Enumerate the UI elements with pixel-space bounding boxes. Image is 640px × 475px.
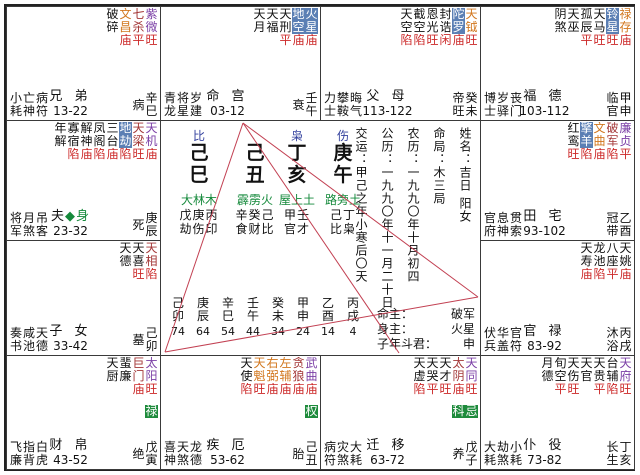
age-range: 73-82 <box>481 453 608 467</box>
star-char: 寡 <box>67 122 80 135</box>
star: 天月 <box>253 8 266 47</box>
hidden-stem-gods: 食财比 <box>231 222 279 236</box>
star-char: 禄 <box>619 8 632 21</box>
stage-char: 墓 <box>132 334 145 347</box>
stem-branch: 戊子 <box>465 441 478 467</box>
star-char: 钺 <box>465 21 478 34</box>
decade-luck-column: 乙酉14 <box>321 297 335 338</box>
life-stage: 冠带 <box>606 212 619 238</box>
star-char: 池 <box>593 255 606 268</box>
brightness: 旺 <box>606 34 619 47</box>
pillar-branch: 亥 <box>273 164 321 186</box>
ziwei-doushu-chart: 比己巳大林木戊庚丙劫伤印 己丑霹雳火辛癸己食财比枭丁亥屋上土甲壬官才伤庚午路旁土… <box>0 0 640 475</box>
stage-char: 浴 <box>606 340 619 353</box>
star-char: 太 <box>452 357 465 370</box>
star-char: 机 <box>145 135 158 148</box>
body-master-value: 火星 <box>451 322 475 337</box>
brightness: 庙 <box>305 34 318 47</box>
life-stage: 长生 <box>606 441 619 467</box>
life-stage: 绝 <box>132 441 145 467</box>
brightness: 陷 <box>67 148 80 161</box>
age-range: 43-52 <box>7 453 134 467</box>
age-range: 13-22 <box>7 104 134 118</box>
star-char: 天 <box>145 122 158 135</box>
brightness: 庙 <box>452 34 465 47</box>
star: 天哭平 <box>426 357 439 418</box>
palace-name: 父 母 <box>321 85 454 104</box>
ten-god-label: 比 <box>175 127 223 142</box>
palace-name-text: 田 宅 <box>523 209 565 224</box>
brightness: 旺 <box>465 34 478 47</box>
luck-start-age: 74 <box>171 325 185 338</box>
brightness: 陷 <box>593 268 606 281</box>
star-char: 廉 <box>619 122 632 135</box>
star-char: 廉 <box>119 370 132 383</box>
brightness: 旺 <box>567 148 580 161</box>
brightness: 陷 <box>240 383 253 396</box>
palace-name-text: 疾 厄 <box>206 438 248 453</box>
luck-start-age: 64 <box>196 325 210 338</box>
life-master-row: 命主： 破军 <box>377 307 475 322</box>
stem-branch-char: 申 <box>619 105 632 118</box>
decade-luck-column: 庚辰64 <box>196 297 210 338</box>
star-list: 红鸾旺擎羊陷文曲庙破军陷廉贞平 <box>567 122 632 161</box>
star-char: 天 <box>279 8 292 21</box>
star-char: 台 <box>106 135 119 148</box>
star-char: 文 <box>593 122 606 135</box>
star-char: 阳 <box>145 370 158 383</box>
star-list: 天使陷天魁旺右弼庙左辅庙贪狼庙武曲庙权 <box>240 357 318 418</box>
star-char: 阴 <box>554 8 567 21</box>
stage-char: 带 <box>606 225 619 238</box>
palace-name: 官 禄 <box>481 320 608 339</box>
palace-name: 兄 弟 <box>7 85 134 104</box>
body-master-label: 身主： <box>377 322 413 337</box>
star-char: 破 <box>606 122 619 135</box>
star-char: 杀 <box>132 21 145 34</box>
star-char: 辅 <box>279 370 292 383</box>
brightness: 陷 <box>413 34 426 47</box>
brightness: 旺 <box>465 383 478 396</box>
star: 天厨 <box>106 357 119 418</box>
star: 八座平 <box>606 242 619 281</box>
brightness: 庙 <box>452 383 465 396</box>
brightness: 平 <box>593 383 606 396</box>
brightness: 陷 <box>93 148 106 161</box>
star: 天同旺忌 <box>465 357 478 418</box>
star-char: 空 <box>292 21 305 34</box>
transform-badge: 权 <box>305 405 318 418</box>
star-char: 年 <box>54 122 67 135</box>
star-char: 魁 <box>253 370 266 383</box>
star: 武曲庙权 <box>305 357 318 418</box>
brightness: 庙 <box>619 268 632 281</box>
star: 旬空平 <box>554 357 567 396</box>
life-stage: 墓 <box>132 327 145 353</box>
star: 年解 <box>54 122 67 161</box>
star-char: 天 <box>240 357 253 370</box>
star: 巨门庙 <box>132 357 145 418</box>
star: 天官 <box>580 357 593 396</box>
star-char: 文 <box>119 8 132 21</box>
star: 天空陷 <box>400 8 413 47</box>
star: 天机庙 <box>145 122 158 161</box>
brightness: 庙 <box>279 383 292 396</box>
star-char: 天 <box>132 242 145 255</box>
brightness: 闲 <box>439 34 452 47</box>
palace-name: 田 宅 <box>481 205 608 224</box>
stage-stem-branch: 绝戊寅 <box>132 441 158 467</box>
star-char: 空 <box>554 370 567 383</box>
stage-stem-branch: 长生丁亥 <box>606 441 632 467</box>
star: 火星庙 <box>305 8 318 47</box>
star-char: 七 <box>132 8 145 21</box>
luck-start-age: 44 <box>246 325 260 338</box>
palace-name: 子 女 <box>7 320 134 339</box>
brightness <box>253 34 266 47</box>
stem-branch-char: 酉 <box>619 225 632 238</box>
stem-branch-char: 午 <box>305 105 318 118</box>
star: 禄存庙 <box>619 8 632 47</box>
stem-branch-char: 戌 <box>619 340 632 353</box>
stage-char: 死 <box>132 219 145 232</box>
star-char: 天 <box>266 8 279 21</box>
star: 天寿庙 <box>580 242 593 281</box>
info-luck-start: 交运：甲己之年小寒后〇天 <box>353 127 370 309</box>
star-char: 梁 <box>132 135 145 148</box>
stem-branch: 辛巳 <box>145 92 158 118</box>
stem-branch-char: 未 <box>465 105 478 118</box>
brightness <box>119 268 132 281</box>
palace-name-text: 子 女 <box>49 324 91 339</box>
star: 孤辰平 <box>580 8 593 47</box>
stem-branch-char: 寅 <box>145 454 158 467</box>
brightness: 平 <box>554 383 567 396</box>
brightness: 平 <box>606 268 619 281</box>
brightness: 平 <box>619 148 632 161</box>
star-char: 天 <box>465 8 478 21</box>
brightness: 庙 <box>106 148 119 161</box>
life-stage: 病 <box>132 92 145 118</box>
star: 天马旺 <box>593 8 606 47</box>
star-char: 红 <box>567 122 580 135</box>
hidden-stems: 甲壬 <box>273 208 321 222</box>
star-char: 哭 <box>426 370 439 383</box>
star-char: 德 <box>541 370 554 383</box>
brightness: 陷 <box>119 148 132 161</box>
brightness: 旺 <box>439 383 452 396</box>
brightness: 旺 <box>132 268 145 281</box>
stem-branch: 丁亥 <box>619 441 632 467</box>
brightness <box>106 383 119 396</box>
star: 太阳旺禄 <box>145 357 158 418</box>
star-char: 月 <box>253 21 266 34</box>
life-stage: 临官 <box>606 92 619 118</box>
star-char: 刑 <box>279 21 292 34</box>
star-char: 太 <box>145 357 158 370</box>
star: 寡宿陷 <box>67 122 80 161</box>
stage-stem-branch: 临官甲申 <box>606 92 632 118</box>
luck-stem-branch-char: 戌 <box>346 310 360 323</box>
pillar-branch: 巳 <box>175 164 223 186</box>
star: 太阴庙科 <box>452 357 465 418</box>
luck-start-age: 4 <box>346 325 360 338</box>
stem-branch-char: 丑 <box>305 454 318 467</box>
palace-name-text: 父 母 <box>366 89 408 104</box>
age-range: 113-122 <box>321 104 454 118</box>
life-stage: 养 <box>452 441 465 467</box>
luck-start-age: 24 <box>296 325 310 338</box>
luck-stem-branch-char: 申 <box>296 310 310 323</box>
star-char: 天 <box>119 242 132 255</box>
hidden-stem-gods: 官才 <box>273 222 321 236</box>
stage-stem-branch: 帝旺癸未 <box>452 92 478 118</box>
star-list: 天月 天福 天刑平地空庙火星庙 <box>253 8 318 47</box>
palace-name-text: 仆 役 <box>523 438 565 453</box>
palace-name: 夫◆身 <box>7 205 134 224</box>
star-char: 天 <box>567 357 580 370</box>
life-stage: 胎 <box>292 441 305 467</box>
age-range: 83-92 <box>481 339 608 353</box>
star-char: 曲 <box>305 370 318 383</box>
star: 陀罗庙 <box>452 8 465 47</box>
star: 龙池陷 <box>593 242 606 281</box>
palace-name: 命 宫 <box>161 85 294 104</box>
star-char: 才 <box>439 370 452 383</box>
brightness: 平 <box>426 383 439 396</box>
brightness: 庙 <box>80 148 93 161</box>
stage-char: 养 <box>452 448 465 461</box>
star-char: 光 <box>426 21 439 34</box>
pillar-branch: 丑 <box>231 164 279 186</box>
life-master-label: 命主： <box>377 307 413 322</box>
star-char: 军 <box>606 135 619 148</box>
star: 天府旺 <box>619 357 632 396</box>
star: 天福 <box>266 8 279 47</box>
brightness: 庙 <box>580 268 593 281</box>
star-char: 左 <box>279 357 292 370</box>
body-master-row: 身主： 火星 <box>377 322 475 337</box>
star-char: 天 <box>400 8 413 21</box>
star-char: 伤 <box>567 370 580 383</box>
birth-info-block: 姓名：吉日 阳女 命局：木三局 农历：一九九〇年十月初四 公历：一九九〇年十一月… <box>344 127 474 309</box>
star: 七杀平 <box>132 8 145 47</box>
star-char: 昌 <box>119 21 132 34</box>
palace-cell-mao: 天德 天喜旺天相陷奏咸天书池德子 女33-42墓己卯 <box>6 240 161 356</box>
life-master-value: 破军 <box>451 307 475 322</box>
star-char: 八 <box>606 242 619 255</box>
palace-cell-yin: 天厨 蜚廉 巨门庙太阳旺禄飞指白廉背虎财 帛43-52绝戊寅 <box>6 355 161 470</box>
info-name: 姓名：吉日 阳女 <box>457 127 474 309</box>
luck-stem-branch-char: 辰 <box>196 310 210 323</box>
nayin-element: 屋上土 <box>273 191 321 208</box>
star-list: 天虚陷天哭平天才旺太阴庙科天同旺忌 <box>413 357 478 418</box>
star-list: 天厨 蜚廉 巨门庙太阳旺禄 <box>106 357 158 418</box>
star-char: 擎 <box>580 122 593 135</box>
star-char: 罗 <box>452 21 465 34</box>
info-solar-date: 公历：一九九〇年十一月二十日 <box>379 127 396 309</box>
star: 天相陷 <box>145 242 158 281</box>
star-char: 天 <box>145 242 158 255</box>
star-char: 台 <box>606 357 619 370</box>
star-char: 厨 <box>106 370 119 383</box>
star: 截空陷 <box>413 8 426 47</box>
star: 蜚廉 <box>119 357 132 418</box>
brightness: 旺 <box>619 383 632 396</box>
star: 文昌庙 <box>119 8 132 47</box>
stem-branch-char: 卯 <box>145 340 158 353</box>
luck-start-age: 14 <box>321 325 335 338</box>
star: 天虚陷 <box>413 357 426 418</box>
star: 天喜旺 <box>132 242 145 281</box>
pillar-stem: 己 <box>175 142 223 164</box>
age-range: 23-32 <box>7 224 134 238</box>
luck-start-age: 34 <box>271 325 285 338</box>
brightness <box>54 148 67 161</box>
stage-char: 病 <box>132 99 145 112</box>
palace-cell-chou: 天使陷天魁旺右弼庙左辅庙贪狼庙武曲庙权喜天龙神煞德疾 厄53-62胎己丑 <box>160 355 321 470</box>
star-char: 天 <box>132 122 145 135</box>
pillar-stem: 己 <box>231 142 279 164</box>
center-panel: 比己巳大林木戊庚丙劫伤印 己丑霹雳火辛癸己食财比枭丁亥屋上土甲壬官才伤庚午路旁土… <box>160 120 481 356</box>
hidden-stem-gods: 劫伤印 <box>175 222 223 236</box>
star: 铃星旺 <box>606 8 619 47</box>
pillar-2: 枭丁亥屋上土甲壬官才 <box>273 127 321 236</box>
star-char: 天 <box>465 357 478 370</box>
star-char: 星 <box>606 21 619 34</box>
doujun-row: 子年斗君： 申 <box>377 337 475 352</box>
star-char: 天 <box>106 357 119 370</box>
palace-name-text: 迁 移 <box>366 438 408 453</box>
star: 三台庙 <box>106 122 119 161</box>
pillar-0: 比己巳大林木戊庚丙劫伤印 <box>175 127 223 236</box>
star: 解神庙 <box>80 122 93 161</box>
star: 地空庙 <box>292 8 305 47</box>
stage-char: 绝 <box>132 448 145 461</box>
star-char: 官 <box>580 370 593 383</box>
star: 左辅庙 <box>279 357 292 418</box>
star-char: 府 <box>619 370 632 383</box>
stage-stem-branch: 死庚辰 <box>132 212 158 238</box>
star-char: 旬 <box>554 357 567 370</box>
star-char: 微 <box>145 21 158 34</box>
palace-cell-hai: 月德 旬空平天伤旺天官 天贵平台辅陷天府旺大劫小耗煞耗仆 役73-82长生丁亥 <box>480 355 635 470</box>
star: 紫微旺 <box>145 8 158 47</box>
star-char: 诰 <box>439 21 452 34</box>
star-list: 天空陷截空陷恩光旺封诰闲陀罗庙天钺旺 <box>400 8 478 47</box>
star-char: 神 <box>80 135 93 148</box>
palace-cell-si: 破碎 文昌庙七杀平紫微旺小亡病耗神符兄 弟13-22病辛巳 <box>6 6 161 121</box>
luck-stem-branch-char: 卯 <box>171 310 185 323</box>
star-char: 贪 <box>292 357 305 370</box>
stage-char: 生 <box>606 454 619 467</box>
stem-branch: 己卯 <box>145 327 158 353</box>
star-char: 福 <box>266 21 279 34</box>
star: 天才旺 <box>439 357 452 418</box>
stage-char: 胎 <box>292 448 305 461</box>
palace-name: 仆 役 <box>481 434 608 453</box>
star-char: 宿 <box>67 135 80 148</box>
luck-stem-branch-char: 酉 <box>321 310 335 323</box>
star: 天刑平 <box>279 8 292 47</box>
star-char: 天 <box>619 242 632 255</box>
brightness: 庙 <box>119 34 132 47</box>
star-char: 天 <box>253 357 266 370</box>
info-lunar-date: 农历：一九九〇年十月初四 <box>405 127 422 309</box>
stage-stem-branch: 胎己丑 <box>292 441 318 467</box>
stage-stem-branch: 墓己卯 <box>132 327 158 353</box>
brightness: 旺 <box>426 34 439 47</box>
star-list: 年解 寡宿陷解神庙凤阁陷三台庙地劫陷天梁旺天机庙 <box>54 122 158 161</box>
star-char: 姚 <box>619 255 632 268</box>
stage-stem-branch: 病辛巳 <box>132 92 158 118</box>
star: 天使陷 <box>240 357 253 418</box>
age-range: 03-12 <box>161 104 294 118</box>
star: 天贵平 <box>593 357 606 396</box>
star-char: 空 <box>413 21 426 34</box>
palace-cell-xu: 天寿庙龙池陷八座平天姚庙伏华官兵盖符官 禄83-92沐浴丙戌 <box>480 240 635 356</box>
star-char: 阁 <box>93 135 106 148</box>
star: 天德 <box>119 242 132 281</box>
star-char: 碎 <box>106 21 119 34</box>
stage-char: 衰 <box>292 99 305 112</box>
brightness <box>106 34 119 47</box>
stage-stem-branch: 养戊子 <box>452 441 478 467</box>
age-range: 103-112 <box>481 104 608 118</box>
stage-stem-branch: 冠带乙酉 <box>606 212 632 238</box>
star-char: 解 <box>54 135 67 148</box>
star-char: 门 <box>132 370 145 383</box>
ten-god-label <box>231 127 279 142</box>
brightness: 庙 <box>292 383 305 396</box>
palace-name-text: 兄 弟 <box>49 89 91 104</box>
body-palace-marker: ◆身 <box>65 209 90 224</box>
life-stage: 帝旺 <box>452 92 465 118</box>
star-char: 天 <box>439 357 452 370</box>
star: 月德 <box>541 357 554 396</box>
star-char: 天 <box>593 357 606 370</box>
star-char: 天 <box>580 242 593 255</box>
palace-name: 疾 厄 <box>161 434 294 453</box>
stem-branch: 癸未 <box>465 92 478 118</box>
decade-luck-column: 己卯74 <box>171 297 185 338</box>
palace-name-text: 官 禄 <box>523 324 565 339</box>
brightness <box>119 383 132 396</box>
brightness: 旺 <box>567 383 580 396</box>
stage-stem-branch: 沐浴丙戌 <box>606 327 632 353</box>
star-char: 狼 <box>292 370 305 383</box>
brightness: 庙 <box>145 148 158 161</box>
star-char: 相 <box>145 255 158 268</box>
star-char: 德 <box>119 255 132 268</box>
star-char: 鸾 <box>567 135 580 148</box>
star-char: 铃 <box>606 8 619 21</box>
star-char: 贞 <box>619 135 632 148</box>
star-char: 使 <box>240 370 253 383</box>
brightness: 庙 <box>132 383 145 396</box>
brightness: 陷 <box>606 148 619 161</box>
palace-name-text: 夫 <box>51 209 65 224</box>
star-char: 蜚 <box>119 357 132 370</box>
star-char: 星 <box>305 21 318 34</box>
palace-cell-wei: 天空陷截空陷恩光旺封诰闲陀罗庙天钺旺力攀晦士鞍气父 母113-122帝旺癸未 <box>320 6 481 121</box>
star-char: 凤 <box>93 122 106 135</box>
star-char: 孤 <box>580 8 593 21</box>
decade-luck-column: 癸未34 <box>271 297 285 338</box>
star: 贪狼庙 <box>292 357 305 418</box>
info-bureau: 命局：木三局 <box>431 127 448 309</box>
luck-start-age: 54 <box>221 325 235 338</box>
